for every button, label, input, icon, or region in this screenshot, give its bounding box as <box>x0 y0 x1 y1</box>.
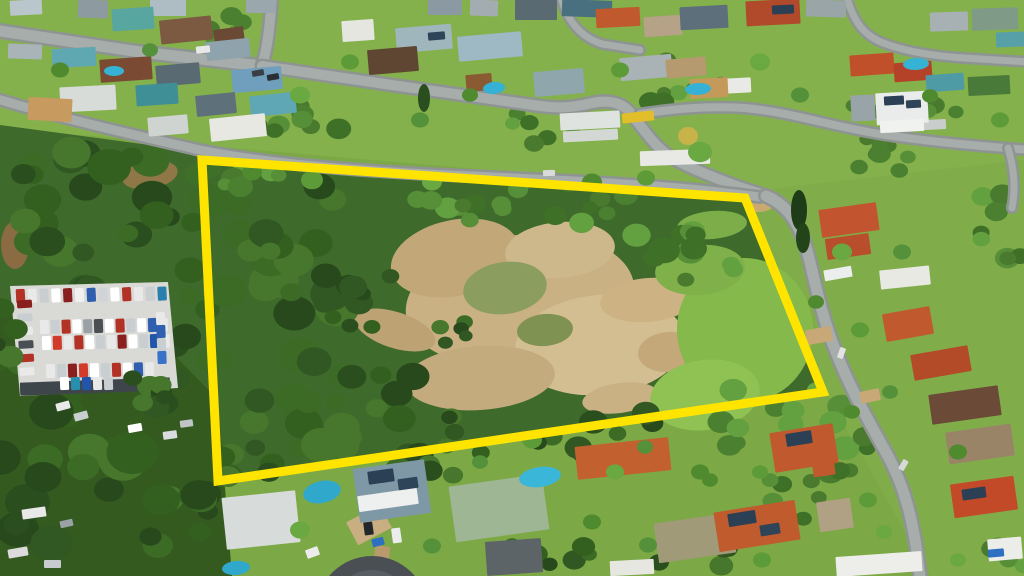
tree-cluster-14-4 <box>382 269 400 283</box>
house-roof-16 <box>27 97 72 122</box>
house-roof-48 <box>996 32 1024 48</box>
tree-cluster-11-5 <box>729 436 746 450</box>
tree-cluster-2-13 <box>25 462 62 492</box>
parked-car-2-7 <box>117 334 126 348</box>
tree-cluster-22-8 <box>999 252 1016 266</box>
parked-car-0-7 <box>98 287 108 301</box>
house-roof-0 <box>10 0 43 16</box>
tree-cluster-3-7 <box>139 528 161 546</box>
golden-tree-0 <box>678 127 698 145</box>
tree-cluster-14-5 <box>342 319 359 333</box>
tree-7 <box>411 112 429 127</box>
parked-car-5-3 <box>157 351 166 364</box>
tree-cluster-21-0 <box>850 160 868 175</box>
tree-cluster-14-0 <box>325 310 342 324</box>
tree-cluster-2-11 <box>107 432 159 474</box>
tree-cluster-3-9 <box>142 484 180 515</box>
house-roof-25 <box>470 0 499 16</box>
tree-cluster-5-6 <box>225 194 252 216</box>
tree-cluster-11-8 <box>720 379 747 401</box>
tree-cluster-6-10 <box>245 388 275 412</box>
tree-cluster-16-3 <box>326 119 351 140</box>
tree-cluster-8-4 <box>443 467 463 484</box>
parked-car-0-11 <box>145 287 155 301</box>
solar-panel-7 <box>772 4 794 14</box>
house-roof-22 <box>367 46 419 75</box>
tree-cluster-16-7 <box>292 111 313 128</box>
tree-10 <box>290 87 310 104</box>
tree-cluster-0-23 <box>29 227 65 256</box>
tree-30 <box>290 522 310 539</box>
tree-20 <box>808 295 824 309</box>
parked-car-2-3 <box>74 335 83 349</box>
tree-cluster-fg-1-5 <box>3 319 27 339</box>
tree-17 <box>991 112 1009 127</box>
tree-cluster-13-5 <box>419 191 442 210</box>
tree-cluster-27-3 <box>572 537 595 556</box>
tree-cluster-5-21 <box>260 243 281 260</box>
house-roof-30 <box>533 68 585 97</box>
tree-cluster-13-7 <box>461 213 479 228</box>
tree-cluster-11-7 <box>727 419 750 438</box>
tree-cluster-5-10 <box>248 273 282 301</box>
solar-panel-5 <box>884 95 904 105</box>
house-roof-34 <box>560 110 621 130</box>
house-roof-10 <box>155 62 201 87</box>
parked-car-2-1 <box>53 336 62 350</box>
parked-car-1-8 <box>126 318 135 332</box>
scene-svg <box>0 0 1024 576</box>
parked-car-0-8 <box>110 287 120 301</box>
house-roof-47 <box>972 7 1019 31</box>
tree-cluster-6-7 <box>337 365 366 389</box>
solar-panel-6 <box>906 100 921 109</box>
tree-cluster-14-8 <box>363 320 380 334</box>
house-roof-39 <box>806 0 847 18</box>
tree-cluster-0-16 <box>10 209 40 234</box>
parked-car-1-4 <box>83 319 92 333</box>
house-roof-17 <box>135 83 178 107</box>
house-roof-40 <box>849 52 894 76</box>
tree-9 <box>341 54 359 69</box>
house-roof-23 <box>428 0 462 15</box>
solar-panel-9 <box>428 31 446 40</box>
tree-cluster-6-18 <box>295 391 322 413</box>
tree-cluster-5-3 <box>273 296 315 331</box>
house-roof-67 <box>485 538 543 576</box>
house-roof-3 <box>111 7 154 32</box>
house-roof-13 <box>195 92 237 117</box>
house-roof-26 <box>515 0 557 20</box>
parked-car-0-6 <box>86 288 96 302</box>
tree-cluster-15-3 <box>431 320 449 334</box>
parked-car-2-6 <box>107 335 116 349</box>
parked-car-1-9 <box>137 318 146 332</box>
parked-car-3-2 <box>68 363 77 377</box>
tree-cluster-10-8 <box>677 273 694 287</box>
tree-cluster-0-12 <box>117 225 138 242</box>
tree-cluster-10-10 <box>680 238 707 260</box>
parked-car-2-0 <box>42 336 51 350</box>
house-roof-61 <box>816 498 854 532</box>
house-roof-37 <box>725 77 752 93</box>
house-roof-29 <box>643 15 682 38</box>
tree-cluster-6-19 <box>301 428 343 463</box>
tree-cluster-0-22 <box>11 164 36 184</box>
tree-1 <box>301 171 323 190</box>
tree-16 <box>922 89 938 103</box>
tree-cluster-0-19 <box>87 149 131 185</box>
house-roof-49 <box>880 119 925 133</box>
parked-car-3-1 <box>57 364 66 378</box>
house-roof-32 <box>665 56 707 78</box>
tree-cluster-12-2 <box>609 426 627 440</box>
tree-6 <box>688 142 712 162</box>
parked-car-1-6 <box>105 319 114 333</box>
tree-cluster-4-2 <box>179 286 202 305</box>
tree-cluster-16-6 <box>266 123 284 138</box>
house-roof-71 <box>610 559 655 576</box>
parked-car-6-3 <box>93 377 102 390</box>
parked-car-0-4 <box>63 288 73 302</box>
tree-cluster-18-2 <box>948 106 963 119</box>
tree-cluster-fg-0-2 <box>123 370 142 385</box>
tree-26 <box>606 464 624 479</box>
parked-car-2-4 <box>85 335 94 349</box>
tree-21 <box>851 322 869 337</box>
tree-cluster-2-5 <box>94 477 124 501</box>
house-roof-1 <box>78 0 109 19</box>
parked-car-1-0 <box>40 320 49 334</box>
tree-cluster-6-20 <box>383 405 416 432</box>
tree-15 <box>791 87 809 102</box>
tree-34 <box>950 553 966 567</box>
tree-cluster-fg-0-5 <box>132 394 153 411</box>
parked-car-0-9 <box>122 287 132 301</box>
tree-18 <box>832 244 852 261</box>
tree-5 <box>637 170 655 185</box>
tree-cluster-21-5 <box>891 163 909 177</box>
conifer-tree-2 <box>418 84 430 112</box>
tree-cluster-5-16 <box>280 283 302 301</box>
parked-car-6-2 <box>82 377 91 390</box>
vehicle-10 <box>363 521 374 535</box>
car-7 <box>44 560 61 568</box>
tree-cluster-15-4 <box>438 337 453 349</box>
tree-cluster-4-9 <box>170 324 201 349</box>
house-roof-62 <box>221 490 300 549</box>
tree-cluster-27-5 <box>541 558 557 571</box>
tree-cluster-6-17 <box>396 363 429 390</box>
tree-cluster-0-14 <box>52 137 91 169</box>
tree-cluster-8-7 <box>445 424 464 440</box>
tree-29 <box>752 465 768 479</box>
parked-car-3-4 <box>90 363 99 377</box>
parked-car-2-2 <box>63 335 72 349</box>
house-roof-6 <box>246 0 276 13</box>
vehicle-7 <box>988 548 1005 557</box>
parked-car-4-0 <box>17 299 33 308</box>
parked-car-3-5 <box>101 363 110 377</box>
tree-cluster-6-9 <box>370 367 391 384</box>
house-roof-46 <box>930 11 969 31</box>
tree-cluster-21-2 <box>900 151 916 164</box>
parked-car-1-2 <box>61 319 70 333</box>
parked-car-3-0 <box>46 364 55 378</box>
tree-cluster-22-6 <box>985 202 1008 221</box>
tree-cluster-7-4 <box>271 169 287 182</box>
parked-car-0-2 <box>39 288 49 302</box>
vehicle-3 <box>196 45 211 53</box>
tree-cluster-9-7 <box>544 206 567 225</box>
parked-car-4-3 <box>18 340 34 349</box>
aerial-photograph <box>0 0 1024 576</box>
parked-car-1-10 <box>148 318 157 332</box>
house-roof-58 <box>987 537 1023 562</box>
parked-car-2-5 <box>96 335 105 349</box>
tree-40 <box>702 473 718 487</box>
conifer-tree-1 <box>796 223 810 253</box>
house-roof-33 <box>679 5 728 30</box>
tree-cluster-21-7 <box>868 145 890 163</box>
parked-car-5-2 <box>157 338 166 351</box>
tree-cluster-9-9 <box>599 206 616 220</box>
tree-cluster-10-5 <box>622 224 650 247</box>
tree-cluster-14-1 <box>314 295 335 312</box>
parked-car-5-1 <box>156 325 165 338</box>
tree-cluster-19-4 <box>524 135 544 151</box>
house-roof-28 <box>596 7 641 28</box>
tree-36 <box>844 405 860 419</box>
tree-37 <box>859 492 877 507</box>
parked-car-6-0 <box>60 377 69 390</box>
tree-32 <box>583 514 601 529</box>
parked-car-3-6 <box>112 363 121 377</box>
tree-cluster-19-5 <box>520 115 539 130</box>
house-roof-7 <box>8 43 43 59</box>
tree-13 <box>611 62 629 77</box>
parked-car-1-3 <box>72 319 81 333</box>
layer-golden-tree <box>678 127 698 145</box>
tree-cluster-3-2 <box>189 523 211 541</box>
tree-cluster-fg-0-7 <box>156 390 173 404</box>
tree-24 <box>949 444 967 459</box>
tree-cluster-25-1 <box>709 556 733 576</box>
tree-19 <box>893 244 911 259</box>
tree-cluster-2-16 <box>67 454 99 480</box>
parked-car-0-3 <box>51 288 61 302</box>
parked-car-2-9 <box>139 334 148 348</box>
tree-cluster-13-6 <box>455 199 472 213</box>
parked-car-2-8 <box>128 334 137 348</box>
tree-cluster-13-1 <box>494 201 512 216</box>
tree-cluster-26-3 <box>246 440 266 456</box>
tree-cluster-22-7 <box>973 232 991 246</box>
tree-cluster-10-6 <box>722 257 740 272</box>
house-roof-45 <box>850 94 875 121</box>
parked-car-1-1 <box>51 320 60 334</box>
tree-39 <box>639 537 657 552</box>
tree-cluster-2-15 <box>30 526 72 560</box>
tree-14 <box>750 54 770 71</box>
vehicle-4 <box>543 170 555 176</box>
tree-11 <box>142 43 158 57</box>
parked-car-6-1 <box>71 377 80 390</box>
parked-car-1-7 <box>115 318 124 332</box>
parked-car-4-5 <box>19 367 35 376</box>
tree-8 <box>462 88 478 102</box>
parked-car-0-10 <box>134 287 144 301</box>
parked-car-1-5 <box>94 319 103 333</box>
tree-cluster-14-7 <box>339 276 367 299</box>
tree-33 <box>753 552 771 567</box>
tree-cluster-3-8 <box>181 480 217 510</box>
parked-car-0-5 <box>75 288 85 302</box>
tree-cluster-6-21 <box>297 347 332 376</box>
tree-cluster-0-20 <box>72 244 94 262</box>
tree-cluster-9-2 <box>582 201 598 214</box>
parked-car-3-3 <box>79 363 88 377</box>
tree-35 <box>472 455 488 469</box>
tree-cluster-9-6 <box>569 213 594 233</box>
parked-car-0-12 <box>157 286 167 300</box>
parked-car-3-9 <box>145 362 154 376</box>
tree-cluster-8-10 <box>441 411 457 425</box>
house-roof-20 <box>341 19 374 42</box>
parked-car-5-0 <box>156 312 165 325</box>
tree-cluster-4-6 <box>175 257 206 283</box>
tree-cluster-2-17 <box>29 393 74 430</box>
tree-cluster-6-3 <box>240 410 269 434</box>
tree-23 <box>882 385 898 399</box>
parked-car-6-4 <box>104 377 113 390</box>
tree-cluster-6-16 <box>326 393 346 410</box>
house-roof-2 <box>150 0 186 16</box>
house-roof-43 <box>968 75 1011 96</box>
tree-27 <box>637 440 653 454</box>
house-roof-19 <box>147 114 189 136</box>
tree-38 <box>876 525 892 539</box>
tree-cluster-11-6 <box>782 401 805 420</box>
tree-cluster-19-3 <box>505 117 520 129</box>
swimming-pool-0 <box>104 66 124 76</box>
tree-31 <box>423 538 441 553</box>
tree-cluster-0-18 <box>140 201 174 229</box>
tree-cluster-15-2 <box>459 330 473 341</box>
tree-12 <box>51 62 69 77</box>
tree-cluster-10-11 <box>648 237 680 263</box>
